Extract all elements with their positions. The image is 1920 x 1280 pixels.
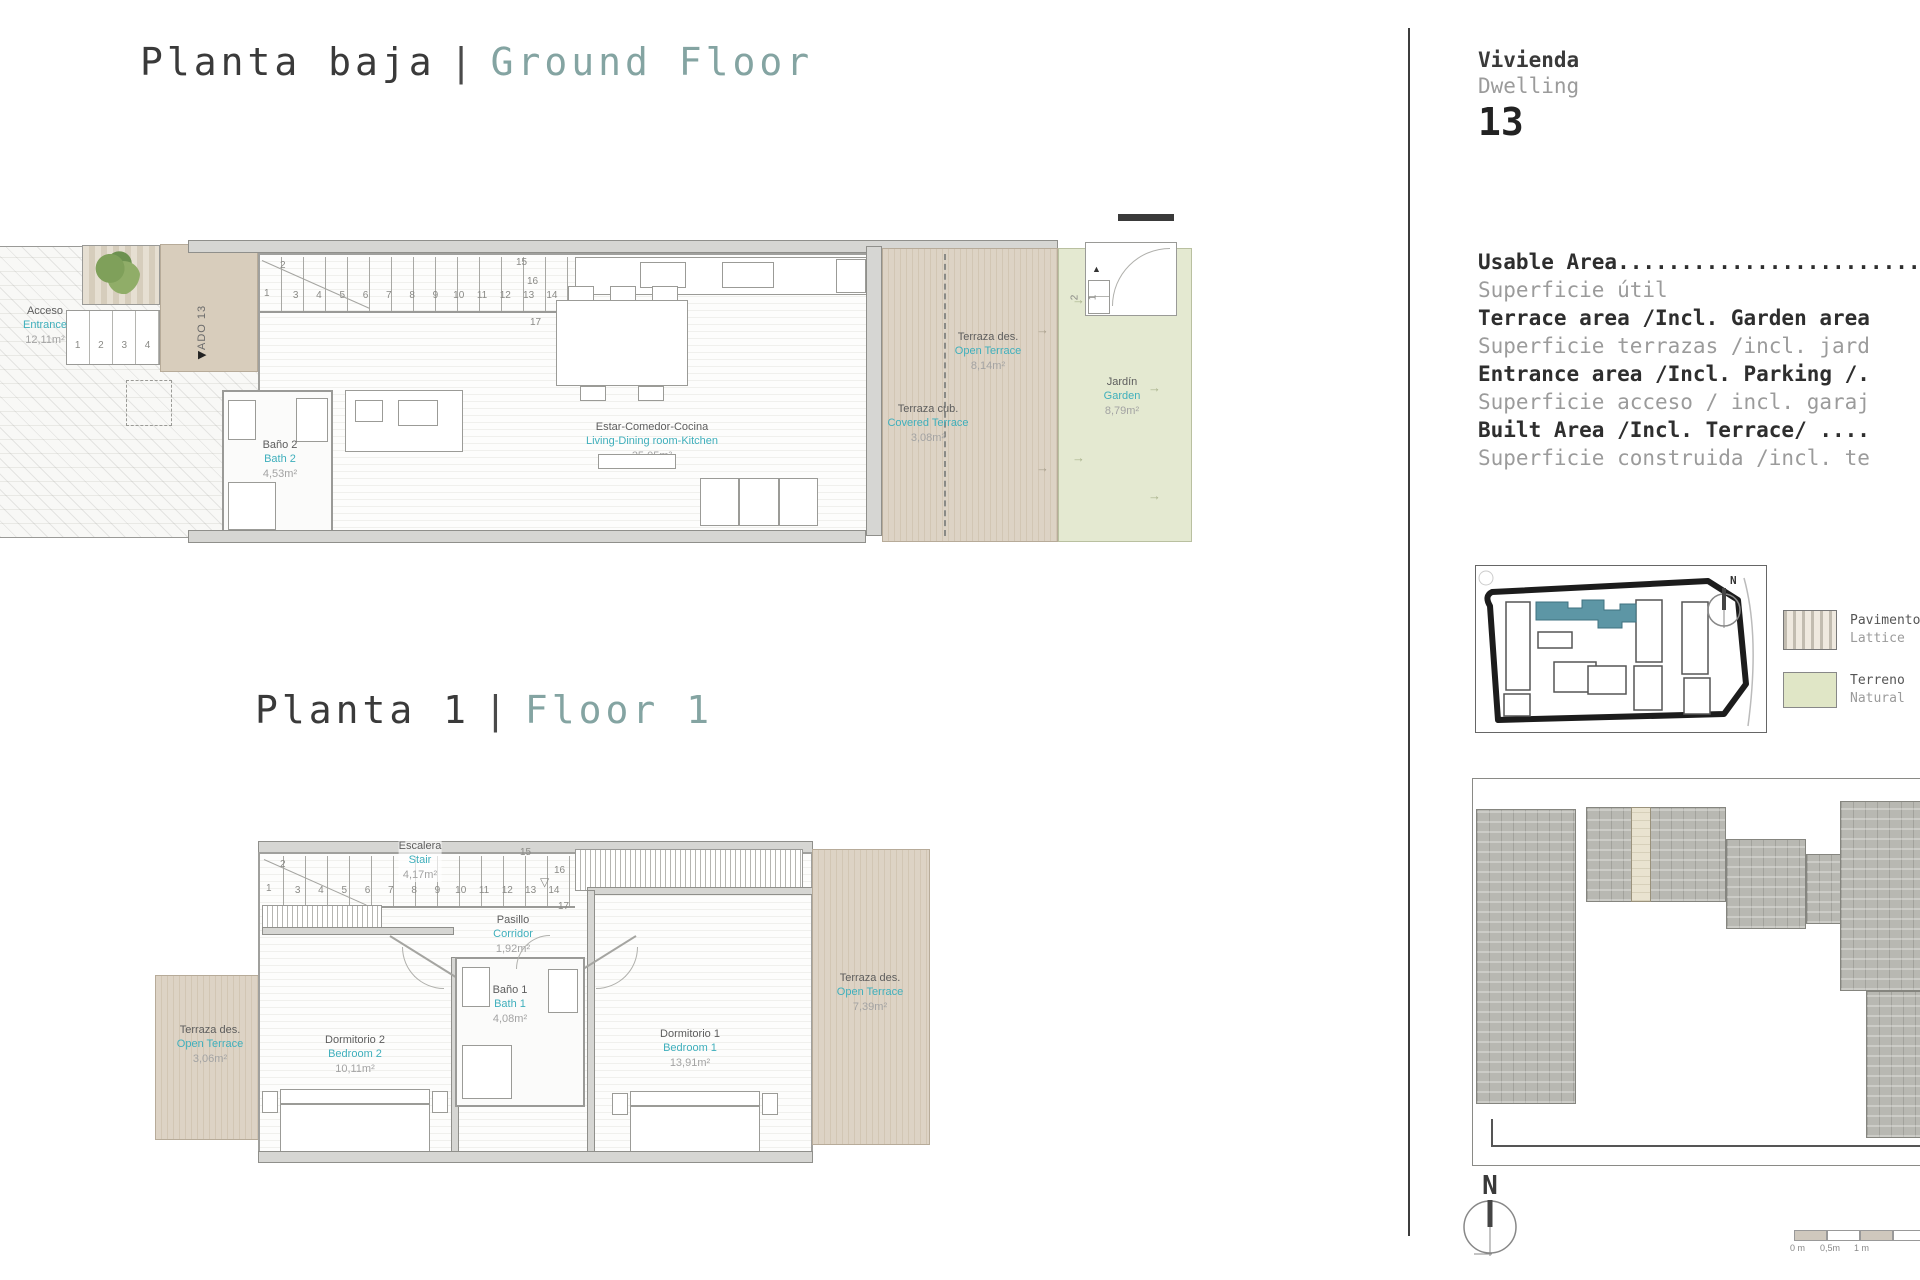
scale-bar-segments <box>1794 1230 1920 1241</box>
stair-direction-icon: ▽ <box>540 875 549 889</box>
floor1-plan: Terraza des. Open Terrace 3,06m² 2 1 3 4… <box>150 835 950 1170</box>
stair-number: 5 <box>333 885 356 896</box>
title-es: Planta baja <box>140 40 436 84</box>
room-label-bath2: Baño 2 Bath 2 4,53m² <box>263 438 298 481</box>
area-summary-list: Usable Area........................ Supe… <box>1478 248 1920 472</box>
room-label-terrace-left: Terraza des. Open Terrace 3,06m² <box>177 1023 243 1066</box>
island-sink <box>355 400 383 422</box>
site-boundary-wall <box>1491 1119 1493 1147</box>
direction-arrow: → <box>1036 322 1049 337</box>
sofa-divider <box>778 478 780 526</box>
stair-number: 17 <box>558 901 569 912</box>
legend-swatch-natural <box>1783 672 1837 708</box>
stair-number: 11 <box>470 290 493 301</box>
area-line-en: Terrace area /Incl. Garden area <box>1478 304 1920 332</box>
stair-number: 7 <box>379 885 402 896</box>
step-number: 3 <box>113 340 136 351</box>
legend-item-lattice: Pavimento Lattice <box>1850 612 1920 648</box>
direction-arrow: → <box>1072 450 1085 465</box>
utility-dashed-box <box>126 380 172 426</box>
stair-number: 16 <box>527 276 538 287</box>
room-label-stair: Escalera Stair 4,17m² <box>399 839 442 882</box>
site-boundary-wall <box>1491 1145 1920 1147</box>
chair <box>638 386 664 401</box>
tv-bench <box>598 454 676 469</box>
stair-number: 16 <box>554 865 565 876</box>
stair-number: 4 <box>309 885 332 896</box>
site-map-drawing: N <box>1476 566 1768 734</box>
area-line-es: Superficie construida /incl. te <box>1478 444 1920 472</box>
bed <box>630 1091 760 1157</box>
kitchen-hob <box>722 262 774 288</box>
ground-terrace <box>882 248 1058 542</box>
stair-number: 1 <box>264 288 270 299</box>
sofa-divider <box>738 478 740 526</box>
building-block <box>1476 809 1576 1104</box>
scale-segment <box>1860 1230 1893 1241</box>
scale-label: 1 m <box>1854 1243 1869 1253</box>
title-en: Floor 1 <box>525 688 713 732</box>
sofa <box>700 478 818 526</box>
scale-segment <box>1827 1230 1860 1241</box>
nightstand <box>762 1093 778 1115</box>
ground-floor-plan: 1 2 3 4 Acceso Entrance 12,11m² ADO 13 ▶… <box>0 240 1210 552</box>
fridge <box>836 259 866 293</box>
area-line-es: Superficie acceso / incl. garaj <box>1478 388 1920 416</box>
interior-wall <box>587 890 595 1154</box>
direction-arrow: → <box>1148 488 1161 503</box>
stair-number: 4 <box>307 290 330 301</box>
washbasin <box>548 969 578 1013</box>
title-es: Planta 1 <box>255 688 470 732</box>
entrance-door-leaf <box>1118 214 1174 221</box>
nightstand <box>432 1091 448 1113</box>
area-line-es: Superficie útil <box>1478 276 1920 304</box>
stair-number: 2 <box>280 859 286 870</box>
scale-labels: 0 m 0,5m 1 m <box>1794 1241 1920 1253</box>
stair-number: 12 <box>496 885 519 896</box>
room-label-garden: Jardín Garden 8,79m² <box>1104 375 1141 418</box>
entry-arrow-icon: ▲ <box>1092 264 1101 274</box>
building-block <box>1726 839 1806 929</box>
title-en: Ground Floor <box>491 40 814 84</box>
stair-number: 9 <box>424 290 447 301</box>
stair-number: 1 <box>266 883 272 894</box>
exterior-wall <box>866 246 882 536</box>
dwelling-label-es: Vivienda <box>1478 48 1579 72</box>
kitchen-sink <box>640 262 686 288</box>
highlighted-dwelling <box>1631 807 1651 902</box>
ground-floor-title: Planta baja|Ground Floor <box>140 40 813 84</box>
shower <box>228 482 276 530</box>
north-compass-drawing: N <box>1462 1170 1522 1262</box>
entry-steps <box>66 310 160 365</box>
stair-number: 3 <box>284 290 307 301</box>
ado-arrow-icon: ▶ <box>198 348 206 361</box>
stair-number: 10 <box>447 290 470 301</box>
plants <box>94 250 140 296</box>
scale-segment <box>1893 1230 1920 1241</box>
stair-number: 9 <box>426 885 449 896</box>
step-number: 1 <box>66 340 89 351</box>
scale-bar: 0 m 0,5m 1 m <box>1794 1230 1920 1253</box>
interior-wall <box>262 927 454 935</box>
bed-pillow-line <box>280 1103 430 1105</box>
title-separator: | <box>484 688 511 732</box>
stair-numbers: 3 4 5 6 7 8 9 10 11 12 13 14 <box>284 290 564 301</box>
stair-number: 11 <box>472 885 495 896</box>
stair-number: 2 <box>280 260 286 271</box>
panel-divider <box>1408 28 1410 1236</box>
nightstand <box>612 1093 628 1115</box>
site-location-map: N <box>1475 565 1767 733</box>
bed-pillow-line <box>630 1105 760 1107</box>
step-number: 1 <box>1087 295 1098 301</box>
stair-number: 15 <box>520 847 531 858</box>
step-number: 4 <box>136 340 159 351</box>
step-number: 2 <box>1069 295 1080 301</box>
stair-number: 17 <box>530 317 541 328</box>
ado-label: ADO 13 <box>196 288 208 350</box>
interior-wall <box>587 887 813 895</box>
stair-number: 10 <box>449 885 472 896</box>
scale-segment <box>1794 1230 1827 1241</box>
area-line-en: Built Area /Incl. Terrace/ .... <box>1478 416 1920 444</box>
floor1-title: Planta 1|Floor 1 <box>255 688 713 732</box>
toilet <box>462 967 490 1007</box>
dining-table <box>556 300 688 386</box>
stair-number: 8 <box>400 290 423 301</box>
floorplan-sheet: Planta baja|Ground Floor Planta 1|Floor … <box>0 0 1920 1280</box>
direction-arrow: → <box>1148 380 1161 395</box>
stair-number: 6 <box>354 290 377 301</box>
map-north-label: N <box>1730 574 1737 587</box>
building-block <box>1866 991 1920 1138</box>
ado-walkway <box>160 244 258 372</box>
north-compass: N <box>1462 1170 1522 1267</box>
chair <box>580 386 606 401</box>
room-label-bedroom2: Dormitorio 2 Bedroom 2 10,11m² <box>325 1033 385 1076</box>
building-block <box>1840 801 1920 991</box>
title-separator: | <box>450 40 477 84</box>
room-label-terrace-right: Terraza des. Open Terrace 7,39m² <box>837 971 903 1014</box>
stair-number: 12 <box>494 290 517 301</box>
exterior-wall <box>258 1151 813 1163</box>
stair-number: 13 <box>517 290 540 301</box>
area-line-en: Entrance area /Incl. Parking /. <box>1478 360 1920 388</box>
nightstand <box>262 1091 278 1113</box>
masterplan <box>1472 778 1920 1166</box>
exterior-wall <box>188 530 866 543</box>
scale-label: 0 m <box>1790 1243 1805 1253</box>
island-hob <box>398 400 438 426</box>
stair-number: 15 <box>516 257 527 268</box>
room-label-open-terrace: Terraza des. Open Terrace 8,14m² <box>955 330 1021 373</box>
washbasin <box>296 398 328 442</box>
chair <box>568 286 594 301</box>
stair-number: 5 <box>331 290 354 301</box>
building-block <box>1586 807 1726 902</box>
wardrobe <box>575 849 803 891</box>
stair-numbers: 3 4 5 6 7 8 9 10 11 12 13 14 <box>286 885 566 896</box>
shower <box>462 1045 512 1099</box>
room-label-entrance: Acceso Entrance 12,11m² <box>23 304 67 347</box>
building-block <box>1806 854 1842 924</box>
stair-number: 8 <box>402 885 425 896</box>
dwelling-label-en: Dwelling <box>1478 74 1579 98</box>
scale-label: 0,5m <box>1820 1243 1840 1253</box>
stair-number: 13 <box>519 885 542 896</box>
terrace-divider-dashed <box>944 254 946 536</box>
stair-number: 6 <box>356 885 379 896</box>
step-number: 2 <box>89 340 112 351</box>
area-line-en: Usable Area........................ <box>1478 248 1920 276</box>
area-line-es: Superficie terrazas /incl. jard <box>1478 332 1920 360</box>
entry-step-numbers: 1 2 3 4 <box>66 340 160 351</box>
legend-item-natural: Terreno Natural <box>1850 672 1905 708</box>
chair <box>652 286 678 301</box>
stair-number: 3 <box>286 885 309 896</box>
room-label-bedroom1: Dormitorio 1 Bedroom 1 13,91m² <box>660 1027 720 1070</box>
bed <box>280 1089 430 1157</box>
room-label-covered-terrace: Terraza cub. Covered Terrace 3,08m² <box>887 402 968 445</box>
room-label-bath1: Baño 1 Bath 1 4,08m² <box>493 983 528 1026</box>
compass-north-label: N <box>1482 1171 1498 1201</box>
stair-number: 7 <box>377 290 400 301</box>
chair <box>610 286 636 301</box>
legend-swatch-lattice <box>1783 610 1837 650</box>
toilet <box>228 400 256 440</box>
dwelling-number: 13 <box>1478 100 1524 144</box>
direction-arrow: → <box>1036 460 1049 475</box>
